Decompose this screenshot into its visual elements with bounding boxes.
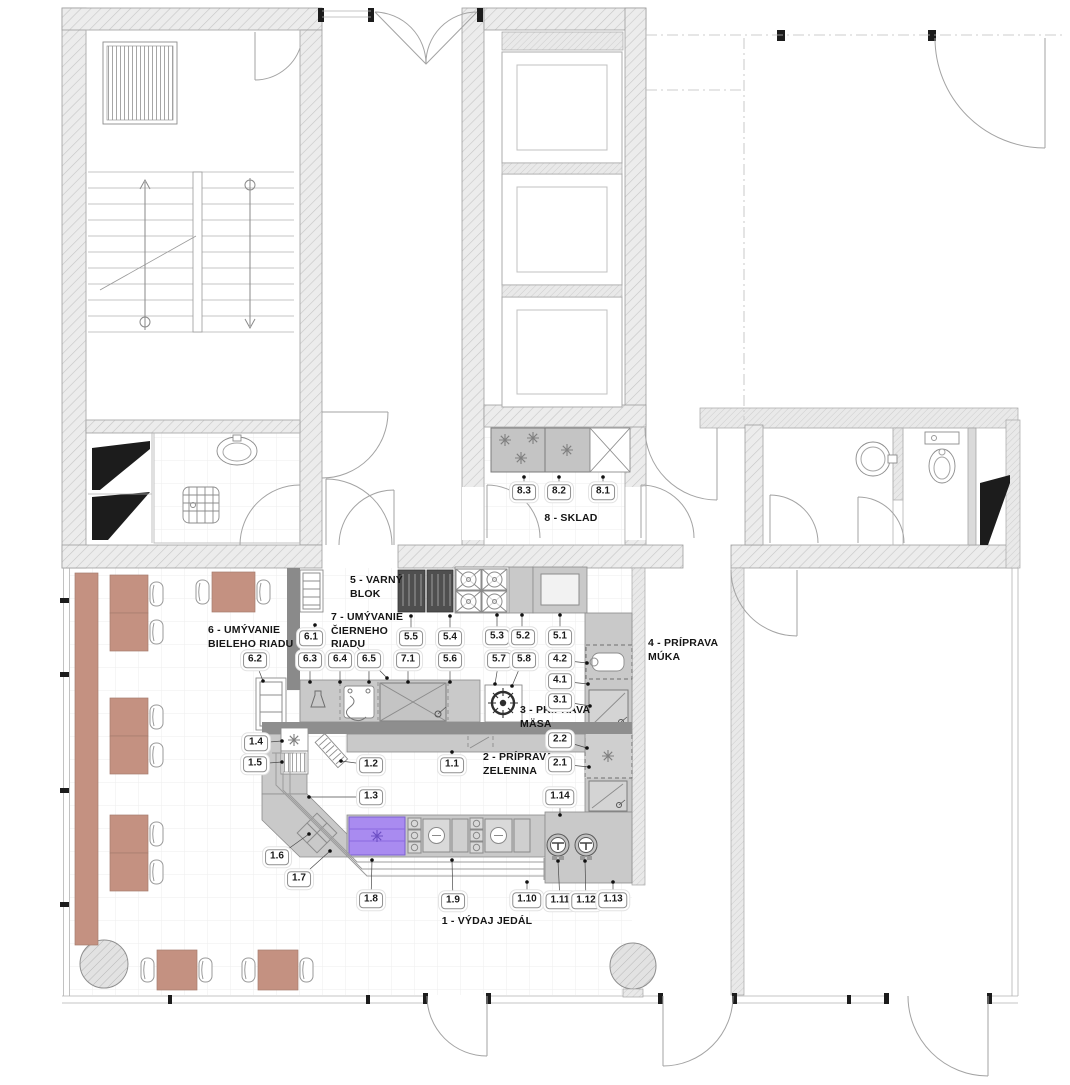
refrigerated-display-unit <box>349 817 405 855</box>
tag-6-4: 6.4 <box>328 652 352 668</box>
table <box>157 950 197 990</box>
kneading-machine <box>586 645 632 679</box>
tag-4-1: 4.1 <box>548 673 572 689</box>
tag-6-3: 6.3 <box>298 652 322 668</box>
tilting-pan <box>533 567 587 613</box>
shaft-marker <box>980 475 1010 545</box>
reference-axes <box>646 35 1066 420</box>
toilet-icon <box>925 432 959 483</box>
tag-5-5: 5.5 <box>399 630 423 646</box>
tag-1-13: 1.13 <box>598 892 627 908</box>
table <box>110 575 148 613</box>
tag-8-2: 8.2 <box>547 484 571 500</box>
tag-4-2: 4.2 <box>548 652 572 668</box>
tag-1-1: 1.1 <box>440 757 464 773</box>
tag-1-12: 1.12 <box>571 893 600 909</box>
tag-6-5: 6.5 <box>357 652 381 668</box>
tag-1-4: 1.4 <box>244 735 268 751</box>
tag-1-6: 1.6 <box>265 849 289 865</box>
room-label-umyvanie-cierneho: 7 - UMÝVANIE ČIERNEHO RIADU <box>331 611 403 652</box>
tag-8-3: 8.3 <box>512 484 536 500</box>
dishwasher-icon <box>344 686 374 721</box>
room-label-priprava-muka: 4 - PRÍPRAVA MÚKA <box>648 637 718 664</box>
tag-6-2: 6.2 <box>243 652 267 668</box>
tag-5-4: 5.4 <box>438 630 462 646</box>
tag-5-6: 5.6 <box>438 652 462 668</box>
tag-5-1: 5.1 <box>548 629 572 645</box>
tag-1-9: 1.9 <box>441 893 465 909</box>
rack-trolley <box>300 570 323 612</box>
tag-1-10: 1.10 <box>512 892 541 908</box>
tag-1-14: 1.14 <box>545 789 574 805</box>
room-label-vydaj-jedal: 1 - VÝDAJ JEDÁL <box>442 915 533 929</box>
room-label-umyvanie-bieleho: 6 - UMÝVANIE BIELEHO RIADU <box>208 624 293 651</box>
shaft-block <box>502 32 623 407</box>
bench <box>75 573 98 945</box>
table <box>212 572 255 612</box>
tag-1-7: 1.7 <box>287 871 311 887</box>
tag-7-1: 7.1 <box>396 652 420 668</box>
tag-5-2: 5.2 <box>511 629 535 645</box>
staircase <box>88 42 294 332</box>
tag-2-1: 2.1 <box>548 756 572 772</box>
table <box>110 853 148 891</box>
shower-icon <box>183 487 219 523</box>
tag-5-3: 5.3 <box>485 629 509 645</box>
prep-sink-2 <box>589 781 627 811</box>
tag-1-11: 1.11 <box>546 893 575 909</box>
table <box>110 736 148 774</box>
tag-5-8: 5.8 <box>512 652 536 668</box>
stove-icon <box>455 567 509 613</box>
counter-fridge-unit <box>281 728 308 774</box>
table <box>110 613 148 651</box>
table <box>258 950 298 990</box>
table <box>110 698 148 736</box>
tag-1-5: 1.5 <box>243 756 267 772</box>
room-label-priprava-zelenina: 2 - PRÍPRAVA ZELENINA <box>483 751 553 778</box>
tag-1-2: 1.2 <box>359 757 383 773</box>
room-label-varny-blok: 5 - VARNÝ BLOK <box>350 574 403 601</box>
storage-cells <box>491 428 630 472</box>
tag-1-8: 1.8 <box>359 892 383 908</box>
tag-2-2: 2.2 <box>548 732 572 748</box>
tag-6-1: 6.1 <box>299 630 323 646</box>
floor-plan: 5 - VARNÝ BLOK 7 - UMÝVANIE ČIERNEHO RIA… <box>0 0 1070 1085</box>
tag-5-7: 5.7 <box>487 652 511 668</box>
room-label-sklad: 8 - SKLAD <box>544 512 597 526</box>
tag-1-3: 1.3 <box>359 789 383 805</box>
prep-fridge <box>585 733 632 778</box>
floor-plan-drawing <box>0 0 1070 1085</box>
wing-sanitary <box>856 432 1010 545</box>
table <box>110 815 148 853</box>
stockpot-stove <box>485 685 522 722</box>
washbasin-icon <box>856 442 897 476</box>
wash-table-x <box>380 683 446 721</box>
prep-strip-right <box>585 613 632 812</box>
tag-8-1: 8.1 <box>591 484 615 500</box>
tag-3-1: 3.1 <box>548 693 572 709</box>
